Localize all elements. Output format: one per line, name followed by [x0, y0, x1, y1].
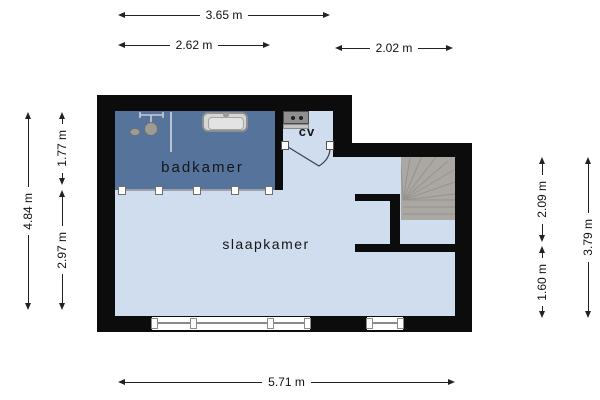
washbasin-tap — [223, 113, 229, 117]
arrow-left-icon — [118, 379, 125, 385]
boiler-dot — [299, 116, 303, 120]
window-post — [190, 318, 197, 329]
window-post — [397, 318, 404, 329]
dim-label: 1.77 m — [55, 124, 69, 173]
wall-top-right-step — [333, 143, 472, 157]
dim-label: 3.79 m — [581, 213, 595, 262]
partition-post — [265, 186, 273, 195]
door-post — [281, 141, 289, 150]
arrow-left-icon — [118, 42, 125, 48]
dim-left-upper: 1.77 m — [55, 112, 69, 185]
arrow-down-icon — [539, 235, 545, 242]
shower-head-icon — [145, 123, 158, 136]
dim-left-lower: 2.97 m — [55, 190, 69, 310]
arrow-down-icon — [59, 303, 65, 310]
arrow-up-icon — [59, 112, 65, 119]
shower-partition — [170, 112, 172, 152]
bathroom-label: badkamer — [115, 159, 290, 176]
arrow-left-icon — [118, 12, 125, 18]
partition-post — [231, 186, 239, 195]
wall-stair-bottom — [355, 244, 472, 252]
arrow-up-icon — [539, 157, 545, 164]
shower-drain-icon — [130, 128, 140, 135]
dim-label: 1.60 m — [535, 258, 549, 307]
dim-top-left: 2.62 m — [118, 38, 270, 52]
arrow-right-icon — [446, 45, 453, 51]
partition-post — [118, 186, 126, 195]
shower-fixture — [125, 108, 175, 158]
dim-label: 4.84 m — [21, 187, 35, 236]
bathroom-glass-partition — [118, 186, 272, 194]
stairs — [401, 156, 455, 220]
dim-top-right: 2.02 m — [335, 41, 453, 55]
dim-label: 2.09 m — [535, 175, 549, 224]
arrow-down-icon — [585, 311, 591, 318]
dim-label: 2.97 m — [55, 226, 69, 275]
window-post — [304, 318, 311, 329]
arrow-left-icon — [335, 45, 342, 51]
arrow-up-icon — [585, 157, 591, 164]
cv-label: cv — [283, 124, 331, 139]
dim-right-upper: 2.09 m — [535, 157, 549, 242]
window-post — [267, 318, 274, 329]
window-small — [367, 317, 403, 330]
dim-right-lower: 1.60 m — [535, 246, 549, 318]
stairs-treads-icon — [401, 156, 455, 220]
arrow-up-icon — [539, 246, 545, 253]
arrow-down-icon — [25, 303, 31, 310]
dim-label: 5.71 m — [262, 375, 311, 389]
dim-right-total: 3.79 m — [581, 157, 595, 318]
dim-left-total: 4.84 m — [21, 112, 35, 310]
boiler-dot — [291, 116, 295, 120]
arrow-up-icon — [25, 112, 31, 119]
exterior-notch — [352, 92, 474, 143]
window-post — [151, 318, 158, 329]
washbasin-fixture — [202, 112, 248, 132]
arrow-down-icon — [59, 178, 65, 185]
dim-label: 2.02 m — [370, 41, 419, 55]
cv-boiler — [283, 111, 309, 124]
washbasin-bowl — [208, 117, 244, 130]
wall-left — [97, 95, 115, 332]
wall-right — [455, 143, 472, 332]
door-post — [326, 141, 334, 150]
arrow-right-icon — [448, 379, 455, 385]
arrow-right-icon — [323, 12, 330, 18]
partition-post — [155, 186, 163, 195]
bedroom-label: slaapkamer — [166, 236, 366, 252]
window-large — [152, 317, 310, 330]
floorplan: badkamer slaapkamer cv 3.65 m 2.62 m 2.0… — [0, 0, 600, 400]
arrow-up-icon — [59, 190, 65, 197]
window-post — [366, 318, 373, 329]
dim-top-total: 3.65 m — [118, 8, 330, 22]
dim-label: 2.62 m — [170, 38, 219, 52]
dim-bottom-total: 5.71 m — [118, 375, 455, 389]
partition-post — [193, 186, 201, 195]
window-glass-line — [152, 322, 310, 324]
arrow-down-icon — [539, 311, 545, 318]
arrow-right-icon — [263, 42, 270, 48]
dim-label: 3.65 m — [200, 8, 249, 22]
